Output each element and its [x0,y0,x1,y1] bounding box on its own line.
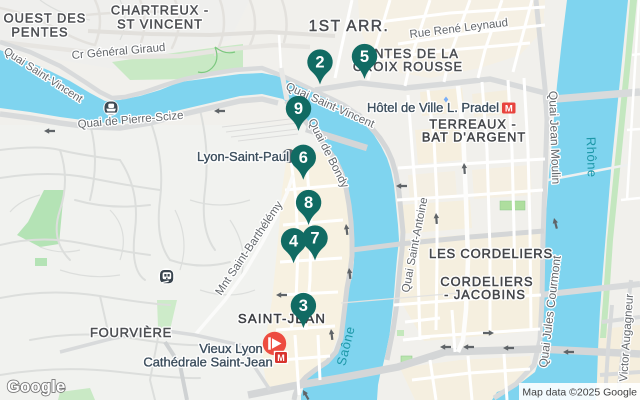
svg-text:PENTES: PENTES [11,25,68,40]
svg-text:3: 3 [299,297,308,315]
svg-text:1ST ARR.: 1ST ARR. [309,18,390,35]
svg-text:FOURVIÈRE: FOURVIÈRE [90,325,172,340]
svg-text:M: M [505,104,513,115]
svg-text:CHARTREUX -: CHARTREUX - [111,3,209,18]
svg-text:Google: Google [7,378,66,396]
svg-text:5: 5 [360,48,369,66]
svg-text:8: 8 [304,194,313,212]
svg-text:BAT D'ARGENT: BAT D'ARGENT [422,130,526,145]
svg-text:4: 4 [289,232,299,250]
svg-text:- JACOBINS: - JACOBINS [444,287,526,302]
svg-text:2: 2 [315,54,324,72]
svg-text:9: 9 [294,100,303,118]
svg-text:LES CORDELIERS: LES CORDELIERS [429,246,553,261]
svg-text:OUEST DES: OUEST DES [4,11,87,26]
svg-text:7: 7 [310,230,319,248]
svg-text:Lyon-Saint-Paul: Lyon-Saint-Paul [197,149,289,164]
svg-text:Cathédrale Saint-Jean: Cathédrale Saint-Jean [143,355,272,370]
svg-text:Map data ©2025 Google: Map data ©2025 Google [522,387,637,399]
svg-text:M: M [277,353,285,363]
svg-text:6: 6 [299,149,308,167]
svg-text:Hôtel de Ville L. Pradel: Hôtel de Ville L. Pradel [367,100,499,115]
svg-text:ST VINCENT: ST VINCENT [117,17,203,32]
svg-text:Rhône: Rhône [584,137,600,178]
